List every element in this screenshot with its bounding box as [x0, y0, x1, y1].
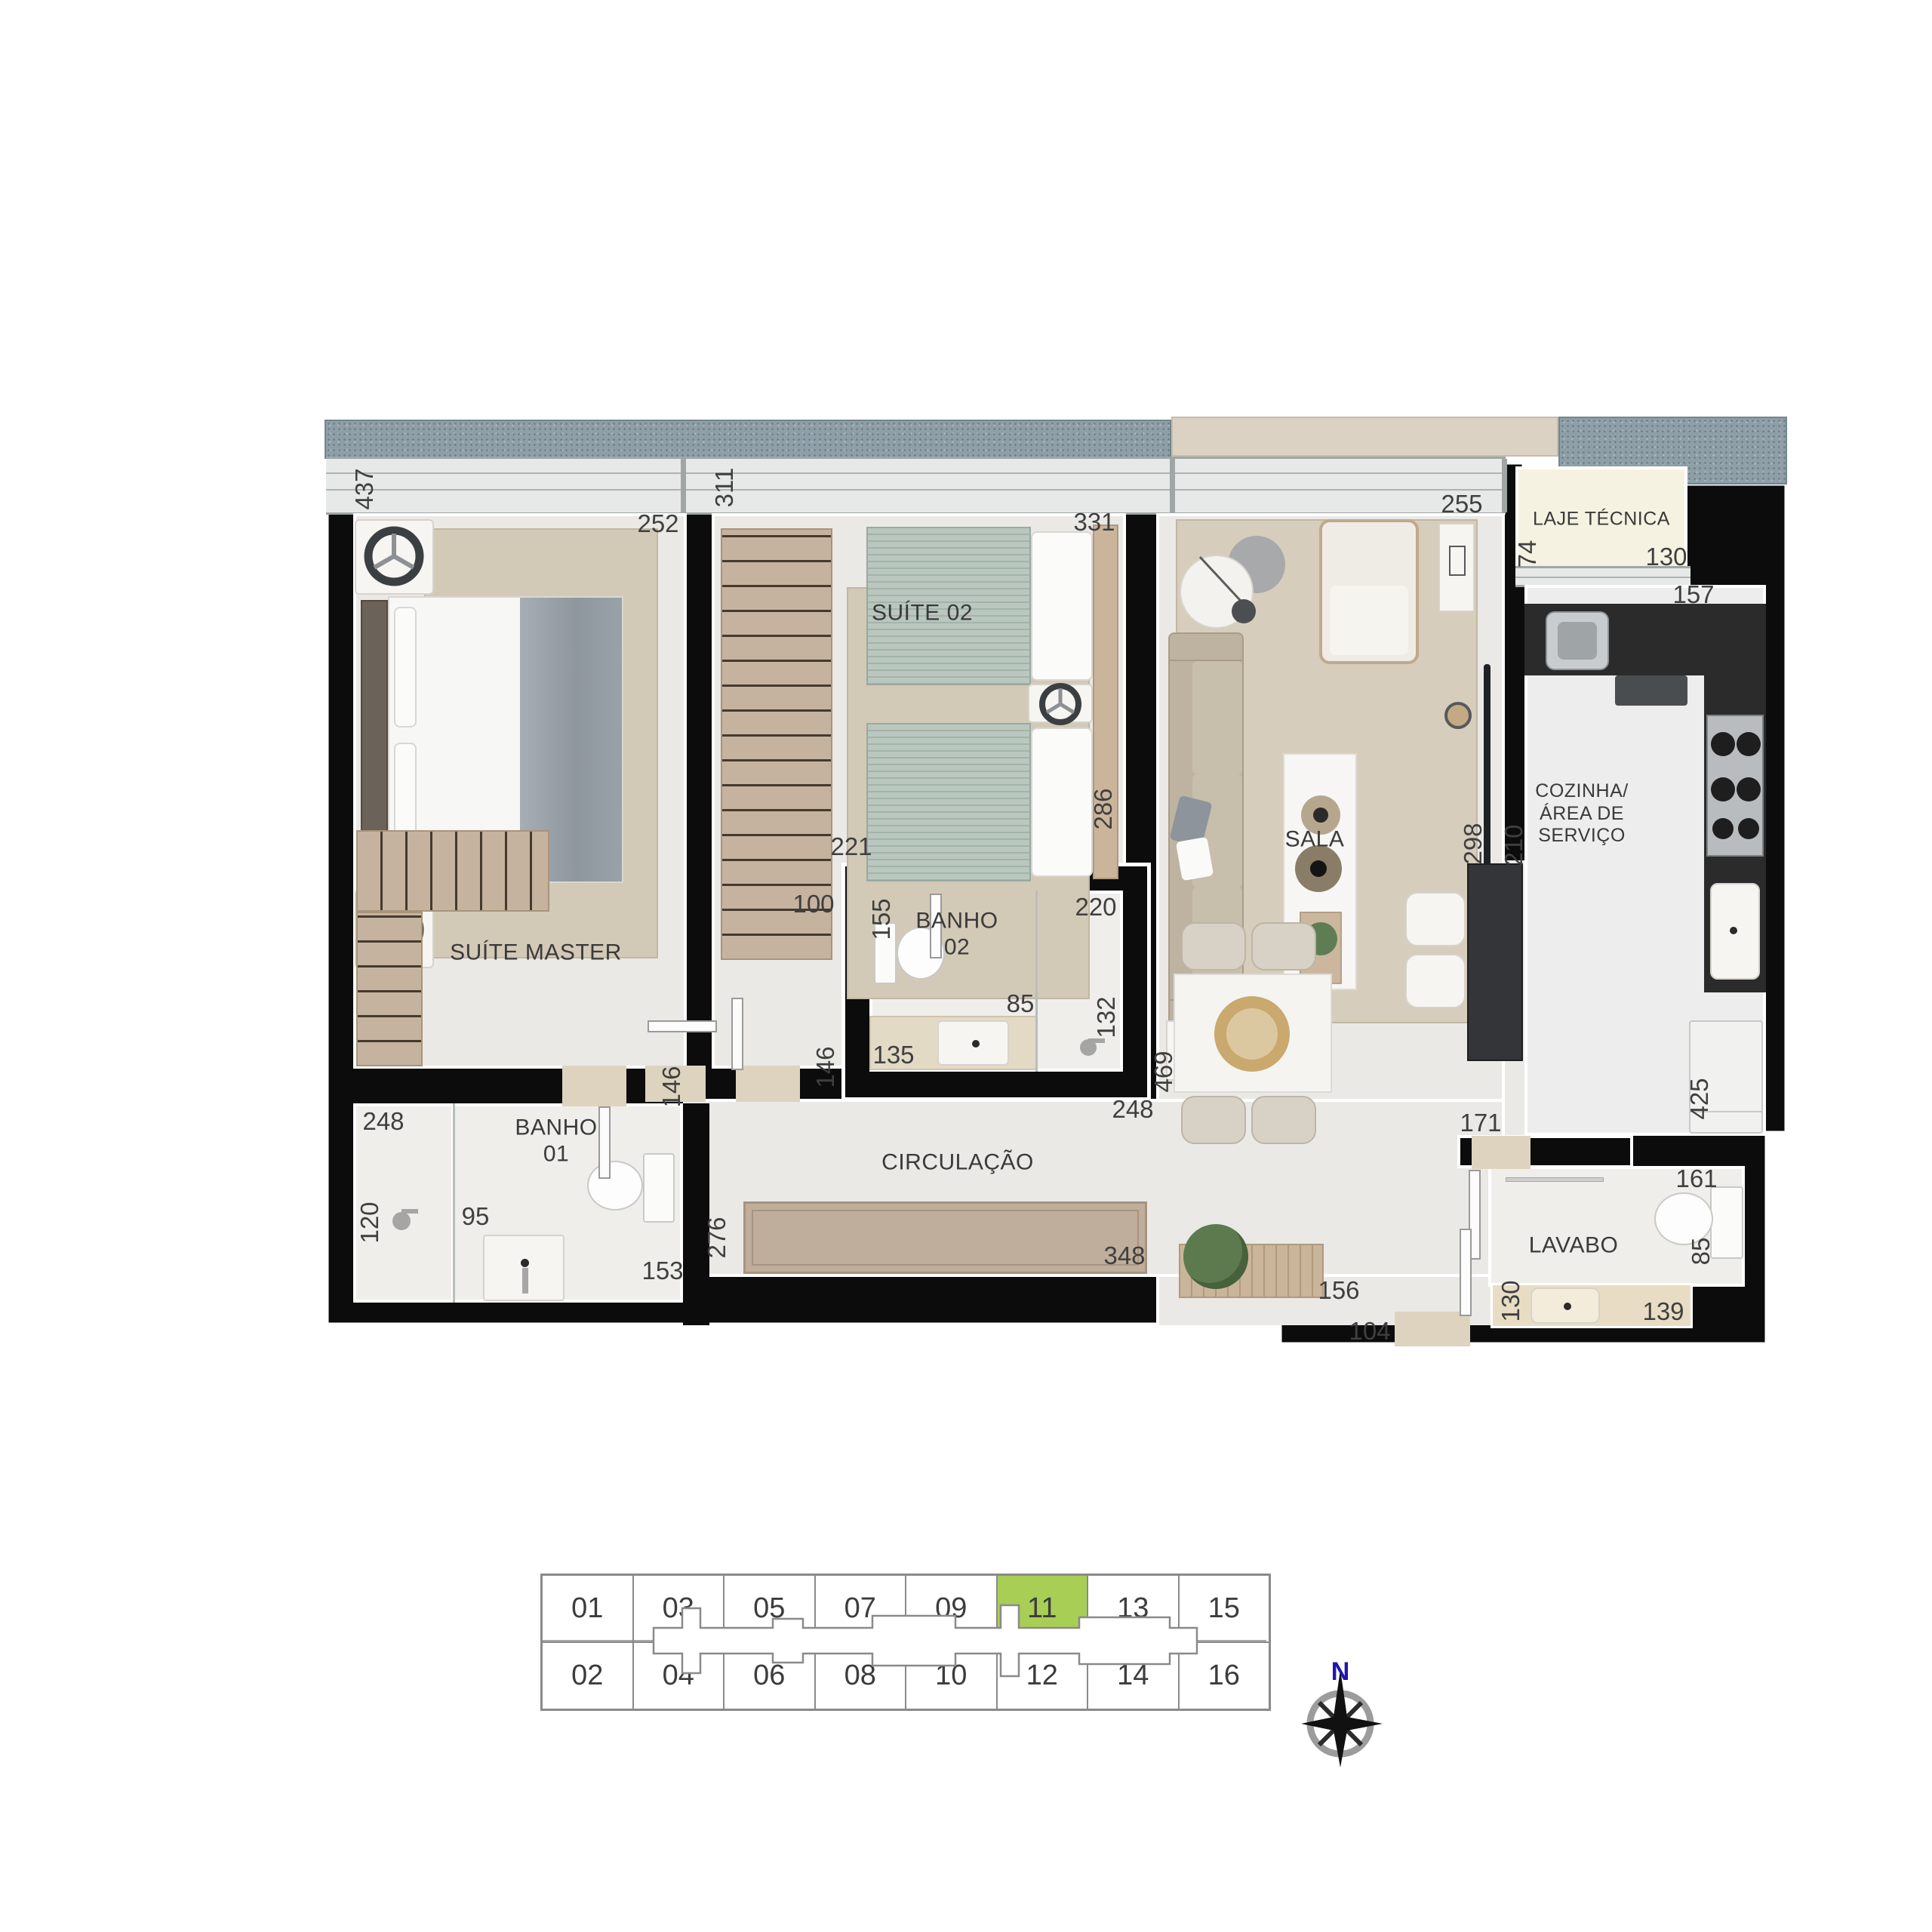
sink-icon [1531, 1287, 1600, 1324]
faucet [522, 1268, 528, 1294]
sideboard-inner [752, 1210, 1139, 1266]
dim-kitchen-counter: 157 [1672, 580, 1714, 609]
armchair-seat [1330, 586, 1408, 655]
closet-icon [356, 830, 549, 912]
throw-pillow [1176, 837, 1214, 881]
side-tables-icon [1177, 549, 1275, 632]
dim-banho-02-outside-left: 100 [792, 890, 834, 918]
label-banho-01: BANHO 01 [515, 1115, 597, 1168]
terrace-slab-left [325, 420, 1171, 459]
window-band-icon [326, 457, 1506, 515]
dining-table-icon [1174, 974, 1332, 1093]
dim-lavabo-above: 171 [1460, 1109, 1501, 1137]
door-threshold [1472, 1136, 1531, 1169]
compass-rose-icon: N [1295, 1657, 1386, 1778]
stove-icon [1707, 715, 1763, 856]
label-lavabo: LAVABO [1529, 1232, 1619, 1258]
unit-cell-04[interactable]: 04 [633, 1642, 724, 1709]
dim-banho-01-right: 146 [657, 1066, 686, 1107]
pillow [1031, 728, 1093, 877]
towel-bar-icon [1506, 1177, 1604, 1182]
closet-icon [356, 912, 423, 1066]
sink-basin [1558, 622, 1597, 660]
entry-door-threshold [1395, 1312, 1470, 1346]
unit-cell-09[interactable]: 09 [906, 1575, 997, 1642]
unit-cell-11-selected[interactable]: 11 [997, 1575, 1088, 1642]
dim-suite-02-right: 286 [1089, 788, 1118, 829]
label-laje-tecnica: LAJE TÉCNICA [1533, 508, 1670, 531]
label-sala: SALA [1285, 826, 1345, 852]
unit-cell-01[interactable]: 01 [542, 1575, 633, 1642]
dim-suite-master-top: 252 [637, 509, 678, 538]
pillow [1031, 531, 1093, 681]
dim-corridor-right: 469 [1149, 1051, 1178, 1092]
unit-cell-14[interactable]: 14 [1088, 1642, 1179, 1709]
unit-cell-10[interactable]: 10 [906, 1642, 997, 1709]
toilet-tank [643, 1153, 675, 1223]
dim-banho-02-top: 220 [1075, 893, 1116, 921]
prep-sink-icon [1710, 883, 1760, 980]
dim-banho-02-above: 221 [830, 832, 872, 861]
plant-icon [1183, 1224, 1248, 1289]
dim-banho-02-shower-right: 132 [1092, 996, 1121, 1038]
label-suite-02: SUÍTE 02 [872, 599, 973, 626]
wall-decor-icon [1444, 702, 1472, 729]
dim-sala-top: 255 [1441, 490, 1482, 518]
floorplan-page: SUÍTE MASTER SUÍTE 02 BANHO 02 BANHO 01 … [0, 0, 1932, 1932]
dining-chair [1251, 922, 1316, 971]
sofa-cushion [1192, 661, 1242, 774]
wall-banho01-corridor [683, 1103, 709, 1325]
label-banho-02: BANHO 02 [915, 908, 998, 961]
drain [1730, 927, 1737, 934]
dim-suite-master-left: 437 [350, 468, 379, 509]
pillow [394, 607, 417, 728]
door-threshold [562, 1066, 626, 1106]
dim-lavabo-sink-bottom: 139 [1642, 1297, 1684, 1326]
unit-cell-07[interactable]: 07 [815, 1575, 906, 1642]
dim-banho-02-sink: 85 [1007, 989, 1035, 1018]
wheel-decor-icon [1038, 682, 1082, 726]
unit-selector: 01 03 05 07 09 11 13 15 02 04 06 08 10 1… [540, 1574, 1271, 1711]
unit-cell-08[interactable]: 08 [815, 1642, 906, 1709]
terrace-slab-sala [1171, 417, 1558, 457]
dim-entry-console: 156 [1318, 1276, 1359, 1305]
kitchen-sink-icon [1546, 611, 1609, 670]
compass-north-label: N [1331, 1657, 1350, 1686]
single-bed-icon [866, 723, 1031, 881]
dim-lavabo-right: 85 [1687, 1238, 1715, 1266]
unit-cell-03[interactable]: 03 [633, 1575, 724, 1642]
unit-cell-16[interactable]: 16 [1179, 1642, 1270, 1709]
dim-sideboard-right: 348 [1103, 1241, 1145, 1270]
unit-cell-05[interactable]: 05 [724, 1575, 815, 1642]
fridge-panel [1449, 546, 1466, 576]
window-mullion [1502, 459, 1507, 512]
shower-glass [1035, 891, 1038, 1072]
tray-bowl [1313, 808, 1328, 823]
dining-chair [1181, 1096, 1246, 1144]
label-cozinha: COZINHA/ ÁREA DE SERVIÇO [1535, 780, 1628, 848]
dim-banho-02-left: 155 [867, 898, 896, 940]
unit-cell-13[interactable]: 13 [1088, 1575, 1179, 1642]
dining-chair [1251, 1096, 1316, 1144]
dim-banho-02-wall-left: 146 [811, 1046, 840, 1088]
fridge-icon [1438, 523, 1475, 612]
wheel-decor-icon [364, 526, 424, 586]
dim-banho-01-left: 120 [355, 1201, 384, 1243]
window-glazing-line [326, 489, 1506, 491]
window-glazing-line [1515, 577, 1690, 578]
stool [1405, 954, 1466, 1008]
window-glazing-line [326, 472, 1506, 474]
wall-oven-icon [1615, 675, 1687, 706]
dim-laje-left: 74 [1513, 540, 1542, 568]
unit-cell-15[interactable]: 15 [1179, 1575, 1270, 1642]
drain [521, 1259, 529, 1267]
door-threshold [736, 1066, 800, 1102]
armchair-icon [1319, 519, 1419, 664]
shower-glass [453, 1103, 455, 1303]
dim-banho-01-top: 248 [362, 1107, 404, 1136]
window-mullion [681, 459, 686, 512]
dim-laje-bottom: 130 [1645, 543, 1687, 571]
unit-cell-02[interactable]: 02 [542, 1642, 633, 1709]
sink-icon [483, 1235, 565, 1301]
dim-sideboard-left: 276 [703, 1217, 731, 1258]
drain [972, 1040, 980, 1048]
entry-door-leaf [1460, 1229, 1472, 1316]
dim-banho-01-shower: 95 [462, 1202, 490, 1231]
label-circulacao: CIRCULAÇÃO [881, 1149, 1034, 1175]
dim-entry-step: 104 [1349, 1317, 1390, 1346]
label-suite-master: SUÍTE MASTER [450, 939, 622, 965]
dim-banho-01-bottom: 153 [641, 1257, 683, 1285]
door-leaf [731, 998, 743, 1070]
unit-cell-12[interactable]: 12 [997, 1642, 1088, 1709]
drain [1564, 1303, 1571, 1310]
stool [1405, 892, 1466, 946]
dim-banho-02-bottom: 248 [1112, 1095, 1153, 1124]
kitchen-island-counter [1467, 863, 1523, 1061]
dim-lavabo-sink-left: 130 [1497, 1280, 1525, 1321]
dining-chair [1181, 922, 1246, 971]
dim-cozinha-left: 210 [1500, 824, 1528, 866]
shower-icon [383, 1201, 421, 1235]
door-leaf [598, 1106, 611, 1179]
tray-bowl [1310, 860, 1327, 877]
window-mullion [1170, 459, 1175, 512]
toilet-icon [587, 1161, 643, 1211]
dim-sala-right: 298 [1459, 823, 1487, 864]
sideboard-icon [743, 1201, 1147, 1274]
sink-icon [937, 1020, 1009, 1066]
dim-suite-02-left: 311 [710, 468, 739, 508]
door-leaf [648, 1020, 717, 1032]
dim-kitchen-right: 425 [1685, 1078, 1714, 1119]
dim-lavabo-top: 161 [1675, 1164, 1717, 1193]
centerpiece-inner [1226, 1008, 1278, 1060]
shower-icon [1072, 1035, 1109, 1066]
dim-banho-02-bottom-left: 135 [872, 1041, 914, 1069]
dim-suite-02-top: 331 [1073, 508, 1115, 537]
unit-cell-06[interactable]: 06 [724, 1642, 815, 1709]
